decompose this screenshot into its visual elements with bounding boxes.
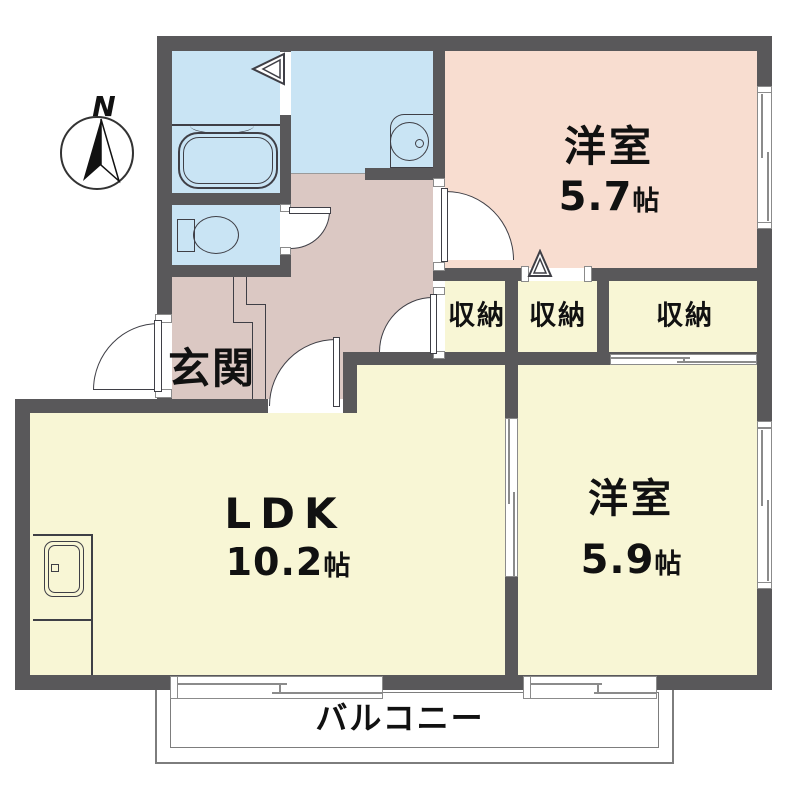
toilet-door-leaf [289, 207, 331, 214]
wall-segment [172, 193, 291, 205]
western-room-upper-size: 5.7帖 [559, 177, 660, 217]
window-rail [767, 152, 769, 221]
western-room-lower-name: 洋室 [588, 479, 674, 519]
slider-rail [530, 683, 602, 685]
door-frame [584, 266, 592, 282]
western-upper-window [757, 92, 772, 223]
western-room-lower-size: 5.9帖 [581, 540, 682, 580]
ldk-size: 10.2帖 [226, 543, 351, 581]
slider-rail [597, 683, 599, 693]
slider-rail [594, 692, 657, 694]
western-room-upper-name: 洋室 [564, 126, 654, 168]
toilet-door-opening [280, 211, 291, 249]
kitchen-counter-right-line [91, 534, 93, 675]
slider-rail [279, 683, 281, 693]
ldk-name: LDK [224, 493, 345, 535]
door-frame [523, 676, 531, 699]
balcony-label: バルコニー [315, 702, 484, 734]
kitchen-faucet-icon [51, 564, 59, 572]
wall-segment [343, 352, 357, 413]
bathtub-inner-line [183, 137, 273, 184]
size-unit: 帖 [632, 186, 659, 217]
slider-rail [610, 357, 690, 359]
wall-segment [433, 268, 757, 281]
door-frame [433, 178, 445, 187]
floor-plan: N 洋室 5.7帖 収納 収納 収納 玄関 LDK 10.2帖 洋室 5.9帖 … [0, 0, 800, 800]
slider-rail [508, 418, 510, 504]
window-rail [767, 500, 769, 581]
washbasin-faucet-icon [415, 139, 424, 148]
window-frame [757, 86, 772, 93]
slider-rail [513, 492, 515, 577]
slider-rail [177, 683, 287, 685]
kitchen-counter-top-line [33, 534, 92, 536]
size-unit: 帖 [323, 551, 350, 582]
storage3-label: 収納 [656, 303, 714, 330]
wall-segment [172, 265, 291, 277]
slider-rail [683, 357, 685, 362]
size-value: 5.9 [581, 537, 655, 583]
floor-boundary-line [291, 173, 365, 174]
door-frame [433, 262, 445, 271]
entrance-door-leaf [154, 320, 162, 392]
wall-segment [15, 399, 30, 690]
genkan-step-line [246, 304, 265, 305]
genkan-step-line [265, 304, 266, 399]
ldk-door-leaf [333, 337, 340, 407]
western-lower-window [757, 428, 772, 583]
entrance-label: 玄関 [168, 348, 256, 390]
genkan-step-line [233, 277, 234, 322]
entrance-door-swing [93, 323, 159, 390]
genkan-step-line [246, 277, 247, 304]
window-rail [761, 94, 763, 158]
genkan-step-line [233, 322, 252, 323]
compass-north-label: N [92, 93, 115, 121]
window-frame [757, 421, 772, 428]
wall-segment [15, 675, 772, 690]
wall-segment [157, 36, 772, 51]
ldk-western-sliding-door [505, 418, 518, 577]
storage2-label: 収納 [529, 303, 587, 330]
western-lower-balcony-sliding-door [530, 676, 657, 699]
compass-needle-icon [80, 115, 122, 185]
slider-rail [272, 692, 383, 694]
toilet-bowl-icon [193, 216, 239, 254]
ldk-floor-notch [357, 365, 505, 413]
door-frame [170, 676, 178, 699]
door-frame [280, 247, 291, 255]
window-frame [757, 222, 772, 229]
storage1-door-leaf [430, 294, 437, 354]
window-rail [761, 430, 763, 506]
storage1-label: 収納 [448, 303, 506, 330]
kitchen-counter-divider-line [33, 619, 92, 621]
western-upper-door-leaf [441, 188, 448, 262]
storage2-hatch-icon [527, 249, 553, 278]
slider-rail [677, 361, 757, 363]
folding-door-icon [250, 52, 286, 86]
size-value: 10.2 [226, 540, 324, 584]
size-unit: 帖 [654, 549, 681, 580]
window-frame [757, 582, 772, 589]
size-value: 5.7 [559, 174, 633, 220]
